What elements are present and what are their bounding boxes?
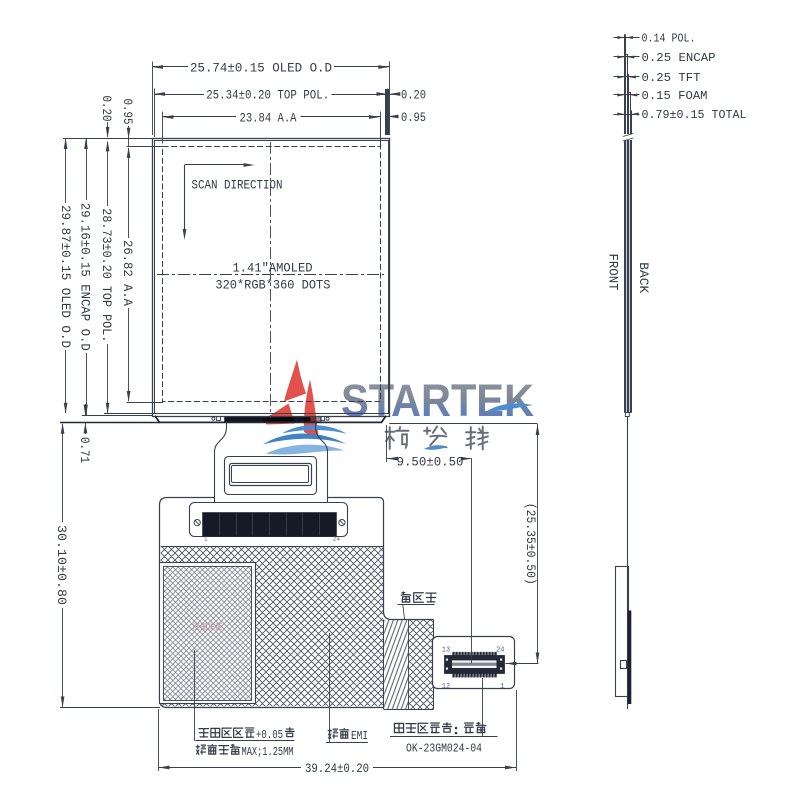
svg-text:24: 24 <box>496 647 504 655</box>
svg-text:30.10±0.80: 30.10±0.80 <box>54 525 69 605</box>
svg-text:23.84 A.A: 23.84 A.A <box>240 110 297 125</box>
svg-text:+0.05: +0.05 <box>256 729 283 742</box>
svg-text:0.71: 0.71 <box>77 437 92 463</box>
svg-text:24: 24 <box>333 536 341 543</box>
svg-text:0.14 POL.: 0.14 POL. <box>642 33 696 46</box>
svg-text:0.25 ENCAP: 0.25 ENCAP <box>642 52 716 65</box>
svg-text:29.16±0.15 ENCAP O.D: 29.16±0.15 ENCAP O.D <box>78 203 93 351</box>
svg-text:BACK: BACK <box>636 262 650 294</box>
svg-text:12: 12 <box>442 683 450 691</box>
svg-text:SCAN DIRECTION: SCAN DIRECTION <box>192 179 283 193</box>
svg-text:0.15 FOAM: 0.15 FOAM <box>642 90 708 103</box>
svg-text:1: 1 <box>500 683 504 691</box>
svg-text:320*RGB*360 DOTS: 320*RGB*360 DOTS <box>215 278 330 293</box>
svg-text:29.87±0.15 OLED O.D: 29.87±0.15 OLED O.D <box>58 205 73 348</box>
svg-text:0.20: 0.20 <box>401 87 426 102</box>
svg-text:1.41″AMOLED: 1.41″AMOLED <box>233 260 313 275</box>
svg-text:(25.35±0.50): (25.35±0.50) <box>523 503 538 585</box>
svg-text:25.74±0.15 OLED O.D: 25.74±0.15 OLED O.D <box>190 60 332 75</box>
svg-text:1: 1 <box>204 536 208 543</box>
svg-text:25.34±0.20 TOP POL.: 25.34±0.20 TOP POL. <box>206 87 329 102</box>
svg-text:9.50±0.50: 9.50±0.50 <box>397 455 464 470</box>
svg-text:FRONT: FRONT <box>606 254 620 291</box>
svg-text:0.20: 0.20 <box>99 96 114 122</box>
svg-text:0.95: 0.95 <box>120 99 135 125</box>
svg-text:0.79±0.15 TOTAL: 0.79±0.15 TOTAL <box>642 109 747 122</box>
svg-text:STARTEK: STARTEK <box>341 375 534 426</box>
svg-text:39.24±0.20: 39.24±0.20 <box>305 761 369 776</box>
svg-text:26.82 A.A: 26.82 A.A <box>120 240 135 306</box>
svg-text:28.73±0.20 TOP POL.: 28.73±0.20 TOP POL. <box>99 208 114 342</box>
svg-text:OK-23GM024-04: OK-23GM024-04 <box>406 742 482 756</box>
svg-text:0.95: 0.95 <box>401 110 426 125</box>
svg-text:MAX;1.25MM: MAX;1.25MM <box>242 746 294 759</box>
svg-text:13: 13 <box>442 647 450 655</box>
svg-text:EMI: EMI <box>351 730 368 743</box>
svg-text:0.25 TFT: 0.25 TFT <box>642 72 701 85</box>
